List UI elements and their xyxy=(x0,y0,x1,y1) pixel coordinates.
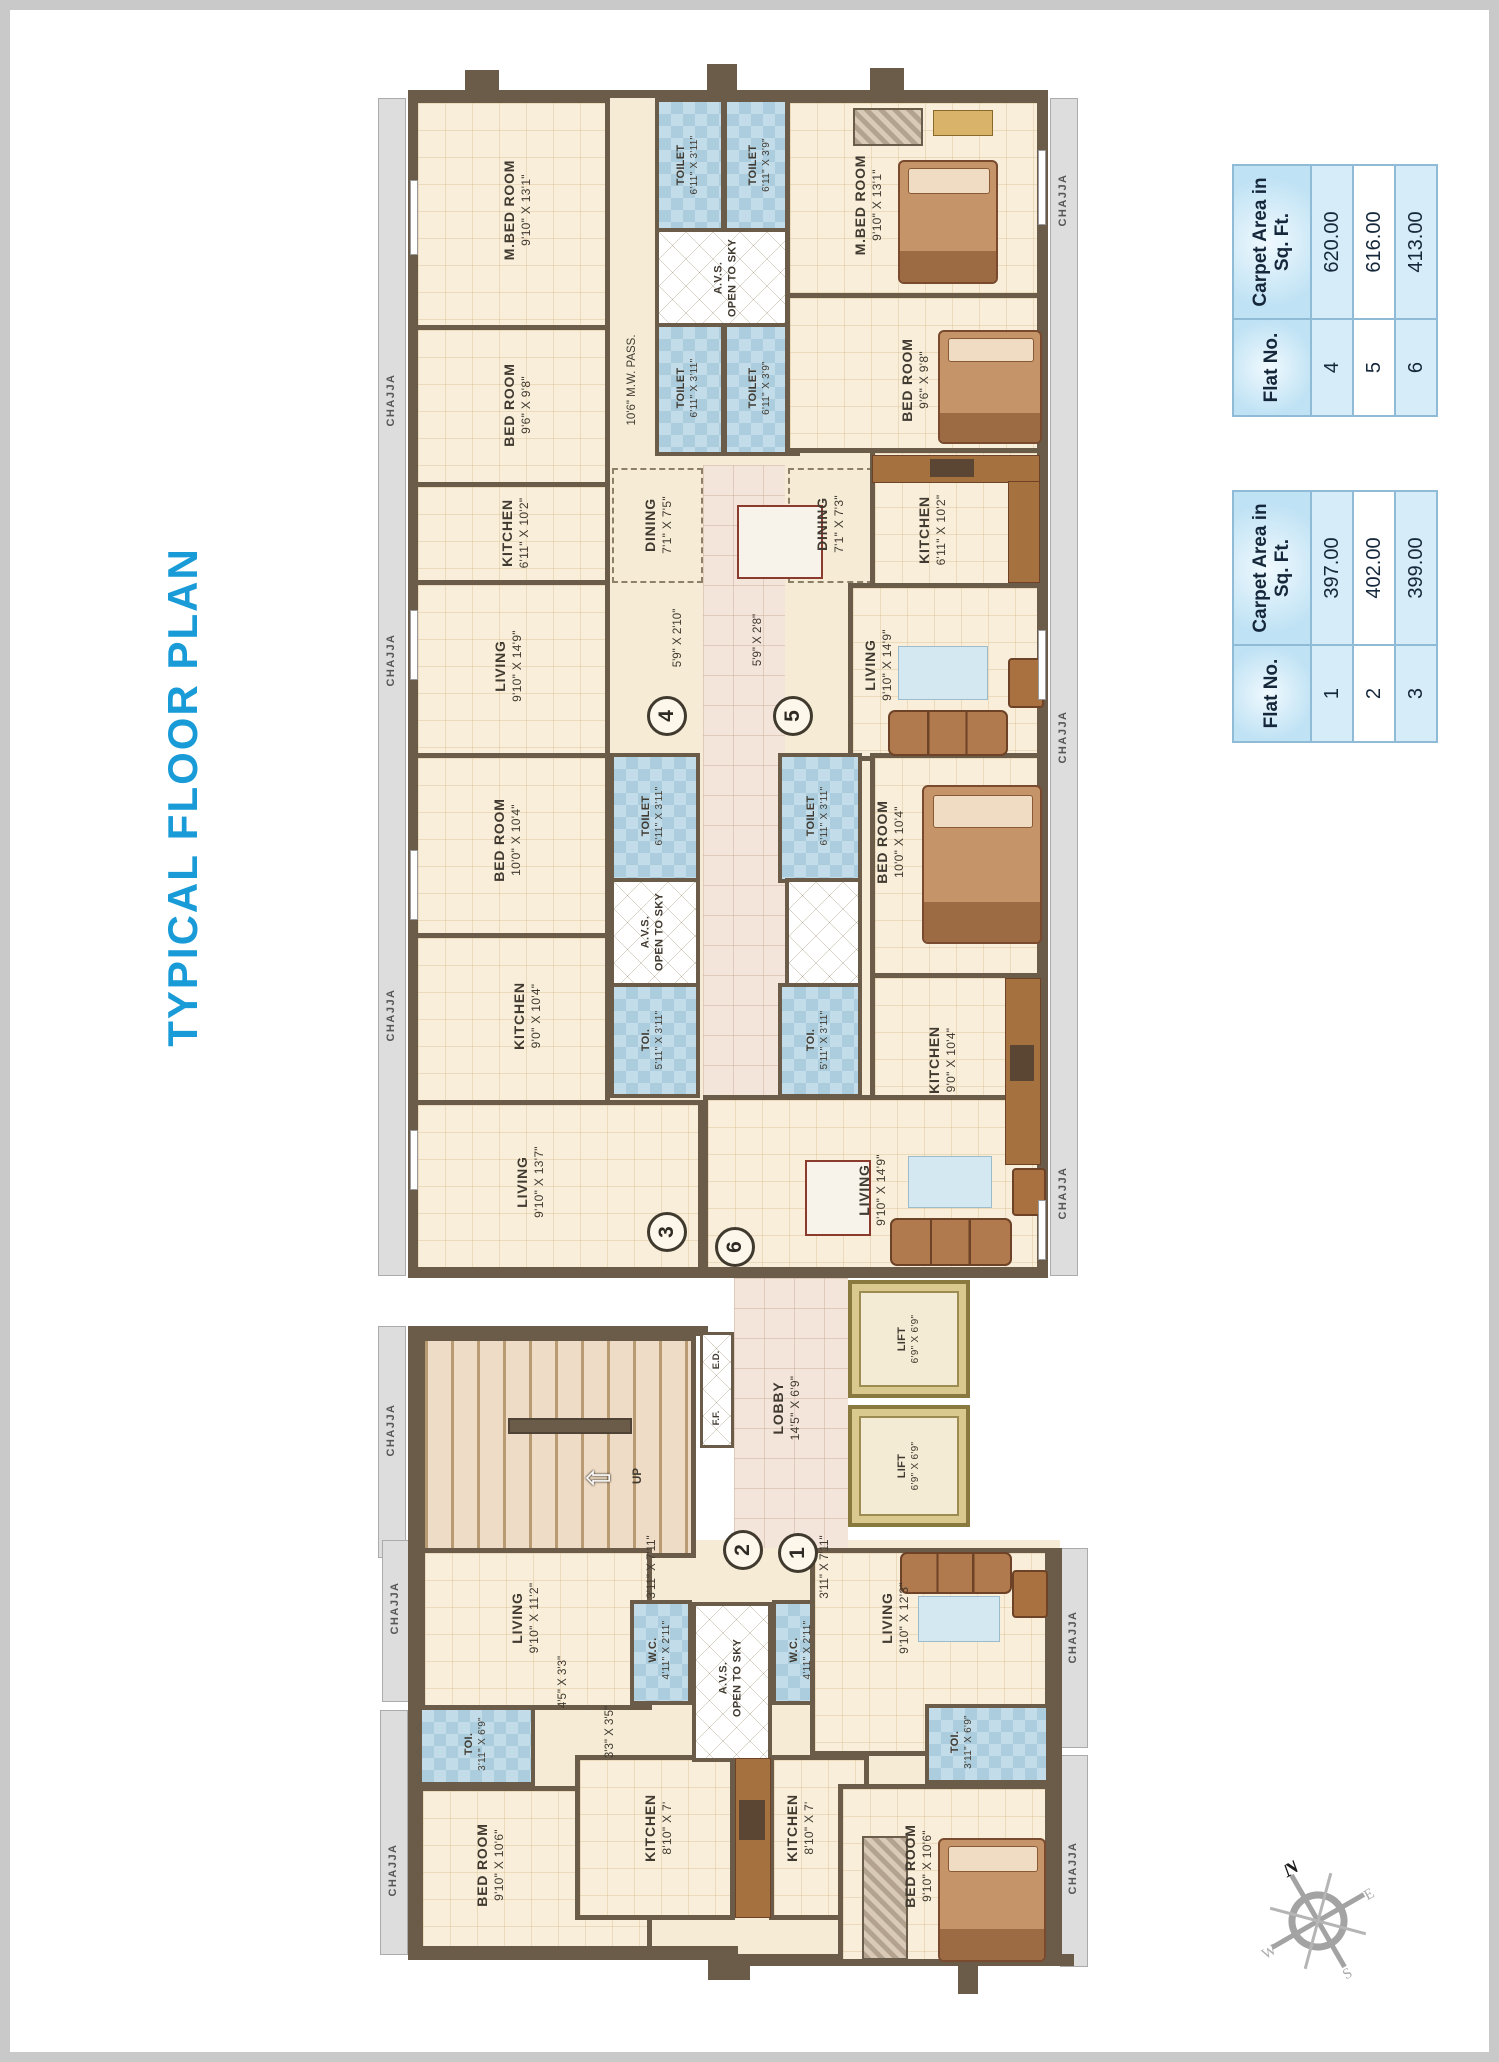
room-label: BED ROOM9'6" X 9'8" xyxy=(899,338,932,421)
room-label: KITCHEN6'11" X 10'2" xyxy=(916,495,949,566)
window xyxy=(410,180,418,255)
room-label: LIVING9'10" X 14'9" xyxy=(492,630,525,702)
wall xyxy=(408,1326,708,1336)
table-cell-area: 620.00 xyxy=(1311,165,1353,319)
stove-icon xyxy=(739,1800,765,1840)
bed xyxy=(938,1838,1046,1962)
chajja-label: CHAJJA xyxy=(1057,710,1071,763)
flat-marker-4: 4 xyxy=(647,696,687,736)
bed xyxy=(922,785,1042,944)
room-label: LIFT6'9" X 6'9" xyxy=(896,1442,922,1491)
room-label: W.C.4'11" X 2'11" xyxy=(788,1621,814,1680)
room-label: TOILET6'11" X 3'11" xyxy=(675,359,701,418)
flat-marker-6: 6 xyxy=(715,1227,755,1267)
room-label: LIVING9'10" X 14'9" xyxy=(862,629,895,701)
chajja-label: CHAJJA xyxy=(385,988,399,1041)
room-flat1-toi xyxy=(925,1704,1050,1784)
table-cell-area: 413.00 xyxy=(1395,165,1437,319)
room-label: KITCHEN9'0" X 10'4" xyxy=(926,1026,959,1094)
rug xyxy=(898,646,988,700)
chajja-label: CHAJJA xyxy=(1067,1841,1081,1894)
window xyxy=(410,610,418,680)
room-label: A.V.S.OPEN TO SKY xyxy=(712,239,740,317)
table-cell-area: 397.00 xyxy=(1311,491,1353,645)
table-cell-flat: 4 xyxy=(1311,319,1353,416)
wall xyxy=(870,68,904,92)
chajja-label: CHAJJA xyxy=(385,373,399,426)
wall xyxy=(958,1960,978,1994)
room-label: LIVING9'10" X 13'7" xyxy=(514,1146,547,1218)
chajja-label: CHAJJA xyxy=(1057,173,1071,226)
sofa xyxy=(888,710,1008,756)
room-label: BED ROOM9'10" X 10'6" xyxy=(902,1824,935,1907)
col-header-flat-no: Flat No. xyxy=(1233,645,1311,742)
stove-icon xyxy=(1010,1045,1034,1081)
bed xyxy=(898,160,998,284)
room-label: TOI.3'11" X 6'9" xyxy=(949,1715,975,1769)
ff-label: F.F. xyxy=(711,1411,723,1426)
ff-ed-shaft xyxy=(700,1332,734,1448)
room-label: W.C.4'11" X 2'11" xyxy=(647,1621,673,1680)
bed xyxy=(938,330,1042,444)
passage-label: 5'9" X 2'10" xyxy=(671,609,685,668)
carpet-area-table-flats-1-3: Flat No. Carpet Area in Sq. Ft. 1 397.00… xyxy=(1232,490,1438,743)
room-label: LIVING9'10" X 11'2" xyxy=(509,1583,542,1654)
room-label: TOI.5'11" X 3'11" xyxy=(805,1011,831,1070)
passage-label: 3'3" X 3'5" xyxy=(603,1706,617,1758)
chajja-strip-right xyxy=(1050,98,1078,1276)
room-label: TOI.3'11" X 6'9" xyxy=(463,1717,489,1771)
flat-marker-5: 5 xyxy=(773,696,813,736)
compass-e: E xyxy=(1361,1886,1377,1904)
floor-plan-page: TYPICAL FLOOR PLAN Flat No. Carpet Area … xyxy=(0,0,1499,2062)
table-cell-flat: 1 xyxy=(1311,645,1353,742)
kitchen-counter xyxy=(1008,481,1040,583)
chajja-strip-flat2-bed xyxy=(380,1710,408,1955)
room-label: TOILET6'11" X 3'9" xyxy=(747,138,773,192)
window xyxy=(1038,630,1046,700)
chajja-label: CHAJJA xyxy=(1067,1610,1081,1663)
rug xyxy=(918,1596,1000,1642)
room-label: LIVING9'10" X 14'9" xyxy=(856,1154,889,1226)
wardrobe xyxy=(853,108,923,146)
room-label: LIFT6'9" X 6'9" xyxy=(896,1315,922,1364)
dining-table xyxy=(737,505,823,579)
room-label: BED ROOM10'0" X 10'4" xyxy=(491,798,524,881)
wall xyxy=(707,64,737,92)
room-label: KITCHEN8'10" X 7' xyxy=(642,1794,675,1862)
page-title: TYPICAL FLOOR PLAN xyxy=(159,547,207,1047)
dresser xyxy=(933,110,993,136)
compass-n: N xyxy=(1276,1852,1304,1883)
compass-rose: N E S W xyxy=(1229,1832,1407,2010)
passage-label: 4'5" X 3'3" xyxy=(556,1656,570,1708)
mw-pass-label: 10'6" M.W. PASS. xyxy=(625,334,639,425)
col-header-carpet-area: Carpet Area in Sq. Ft. xyxy=(1233,165,1311,319)
window xyxy=(1038,1200,1046,1260)
table-cell-flat: 3 xyxy=(1395,645,1437,742)
sofa xyxy=(900,1552,1012,1594)
window xyxy=(1038,150,1046,225)
room-label: DINING7'1" X 7'3" xyxy=(814,495,847,553)
room-label: TOILET6'11" X 3'9" xyxy=(747,361,773,415)
room-label: A.V.S.OPEN TO SKY xyxy=(639,893,667,971)
chajja-label: CHAJJA xyxy=(387,1843,401,1896)
flat-marker-3: 3 xyxy=(647,1212,687,1252)
room-label: A.V.S.OPEN TO SKY xyxy=(717,1639,745,1717)
room-label: KITCHEN6'11" X 10'2" xyxy=(499,498,532,569)
sofa xyxy=(890,1218,1012,1266)
chajja-label: CHAJJA xyxy=(385,633,399,686)
table-cell-flat: 5 xyxy=(1353,319,1395,416)
stove-icon xyxy=(930,459,974,477)
chajja-label: CHAJJA xyxy=(385,1403,399,1456)
avs-shaft-flat6 xyxy=(785,878,862,988)
table-cell-flat: 6 xyxy=(1395,319,1437,416)
table-cell-area: 399.00 xyxy=(1395,491,1437,645)
chajja-strip-left xyxy=(378,98,406,1276)
room-label: BED ROOM9'10" X 10'6" xyxy=(474,1823,507,1906)
carpet-area-table-flats-4-6: Flat No. Carpet Area in Sq. Ft. 4 620.00… xyxy=(1232,164,1438,417)
window xyxy=(410,850,418,920)
compass-s: S xyxy=(1340,1965,1355,1983)
table-cell-area: 616.00 xyxy=(1353,165,1395,319)
passage-label: 3'11" X 7'11" xyxy=(645,1535,659,1598)
flat-marker-2: 2 xyxy=(723,1530,763,1570)
room-label: LOBBY14'5" X 6'9" xyxy=(770,1376,803,1441)
chajja-label: CHAJJA xyxy=(1057,1166,1071,1219)
armchair xyxy=(1012,1570,1048,1618)
rug xyxy=(908,1156,992,1208)
table-cell-area: 402.00 xyxy=(1353,491,1395,645)
room-label: KITCHEN8'10" X 7' xyxy=(784,1794,817,1862)
room-label: KITCHEN9'0" X 10'4" xyxy=(511,982,544,1050)
staircase xyxy=(420,1336,696,1558)
passage-label: 3'11" X 7'11" xyxy=(818,1535,832,1598)
room-label: M.BED ROOM9'10" X 13'1" xyxy=(501,160,534,261)
up-arrow-icon: ⇦ xyxy=(585,1458,612,1496)
room-label: DINING7'1" X 7'5" xyxy=(642,496,675,554)
room-label: LIVING9'10" X 12'3" xyxy=(879,1582,912,1654)
room-label: M.BED ROOM9'10" X 13'1" xyxy=(852,155,885,256)
stair-landing xyxy=(508,1418,632,1434)
chajja-label: CHAJJA xyxy=(389,1581,403,1634)
room-label: TOILET6'11" X 3'11" xyxy=(640,787,666,846)
room-label: TOILET6'11" X 3'11" xyxy=(675,136,701,195)
flat-marker-1: 1 xyxy=(778,1533,818,1573)
stair-up-label: UP xyxy=(631,1468,645,1484)
col-header-carpet-area: Carpet Area in Sq. Ft. xyxy=(1233,491,1311,645)
wall xyxy=(465,70,499,92)
ed-label: E.D. xyxy=(711,1351,723,1369)
wall xyxy=(1050,1548,1062,1966)
passage-label: 5'9" X 2'8" xyxy=(751,614,765,666)
room-label: TOI.5'11" X 3'11" xyxy=(640,1011,666,1070)
room-label: BED ROOM9'6" X 9'8" xyxy=(501,363,534,446)
col-header-flat-no: Flat No. xyxy=(1233,319,1311,416)
room-label: TOILET6'11" X 3'11" xyxy=(805,787,831,846)
table-cell-flat: 2 xyxy=(1353,645,1395,742)
window xyxy=(410,1130,418,1190)
wall xyxy=(708,1960,750,1980)
room-label: BED ROOM10'0" X 10'4" xyxy=(874,800,907,883)
